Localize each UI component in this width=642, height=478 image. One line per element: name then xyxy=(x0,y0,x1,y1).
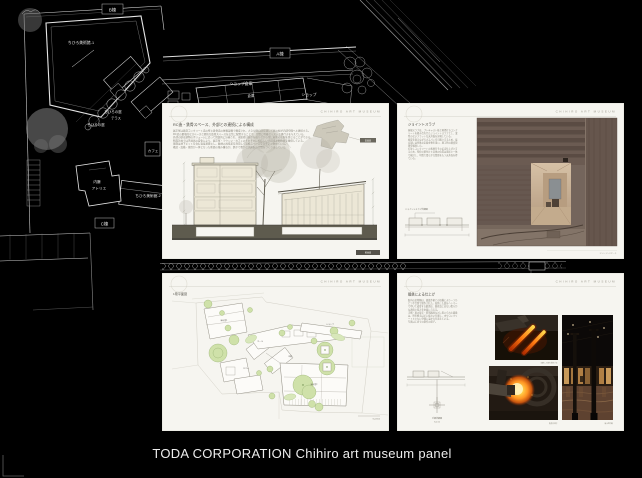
panel-joint-slab: CHIHIRO ART MUSEUM ジョイントスラブ 屋根スラブは、プレキャス… xyxy=(397,103,624,259)
panel-title: 1階平面図 xyxy=(173,291,187,296)
cad-label-terrace: テラス xyxy=(111,116,121,121)
section-left-building xyxy=(192,158,258,226)
cad-label-garden-2: ちひろの庭 xyxy=(87,122,105,127)
scale-label: S=1/600 xyxy=(372,419,380,421)
cad-label-museum-2: ちひろ美術館-2 xyxy=(135,193,160,198)
panel-section-drawing: CHIHIRO ART MUSEUM RC造・鉄骨スペース、外部との連続による構… xyxy=(162,103,389,259)
photo-concrete-interior xyxy=(477,118,617,246)
cad-label-shop: ショップ xyxy=(301,92,316,97)
panel-title: 鍛鉄による仕上げ xyxy=(408,292,436,297)
panel-header-title: CHIHIRO ART MUSEUM xyxy=(321,110,381,114)
panel-header-title: CHIHIRO ART MUSEUM xyxy=(321,280,381,284)
cad-label-wing-b: B棟 xyxy=(109,6,117,13)
photo-dark-interior xyxy=(562,315,613,420)
panel-header-title: CHIHIRO ART MUSEUM xyxy=(556,110,616,114)
panel-header-title: CHIHIRO ART MUSEUM xyxy=(556,280,616,284)
photo-caption-c: 展示室内観 xyxy=(605,422,614,425)
cad-label-wing-a: A棟 xyxy=(276,50,284,57)
panel-forged-iron: CHIHIRO ART MUSEUM 鍛鉄による仕上げ 館内の金物類は、鍛鉄作家… xyxy=(397,273,624,431)
screenshot-root: B棟 ちひろ美術館-1 A棟 ショップ倉庫 倉庫 ショップ カフェ ちひろの庭 … xyxy=(0,0,642,478)
cad-label-box-b: B棟 xyxy=(102,4,123,14)
section-ground xyxy=(172,225,377,240)
body-paragraph: 屋根スラブは、プレキャスト板と現場打ちコンク リートを組み合わせたジョイントスラ… xyxy=(408,128,458,160)
cad-label-naito-1: 内藤 xyxy=(93,179,101,184)
cad-label-shop-warehouse: ショップ倉庫 xyxy=(230,81,253,86)
cad-label-cafe: カフェ xyxy=(148,148,159,153)
photo-forging-bars xyxy=(495,315,558,360)
cad-label-museum-1: ちひろ美術館-1 xyxy=(68,40,94,45)
photo-caption-b: 鍛造の様子 xyxy=(549,422,558,425)
cad-label-wing-c: C棟 xyxy=(101,220,109,227)
panel-title: ジョイントスラブ xyxy=(408,122,436,127)
photo-caption-a: 加熱した鉄を成形する xyxy=(541,362,558,365)
cad-label-box-a: A棟 xyxy=(270,48,290,58)
panel-title: RC造・鉄骨スペース、外部との連続による構成 xyxy=(173,122,254,127)
panel-floor-plan: CHIHIRO ART MUSEUM 1階平面図 xyxy=(162,273,389,431)
cad-label-garden-1: ちひろの庭 xyxy=(104,109,122,114)
cad-label-naito-2: アトリエ xyxy=(92,186,107,191)
photo-opening xyxy=(531,158,571,225)
photo-furnace-glow xyxy=(489,366,558,420)
cad-label-warehouse: 倉庫 xyxy=(248,93,255,98)
panel-page xyxy=(162,273,389,431)
cad-road-hatch-band xyxy=(353,0,476,90)
detail-scale-label: S=1/10 xyxy=(434,422,440,424)
cad-label-box-c: C棟 xyxy=(95,218,114,228)
footer-caption: TODA CORPORATION Chihiro art museum pane… xyxy=(0,446,642,461)
